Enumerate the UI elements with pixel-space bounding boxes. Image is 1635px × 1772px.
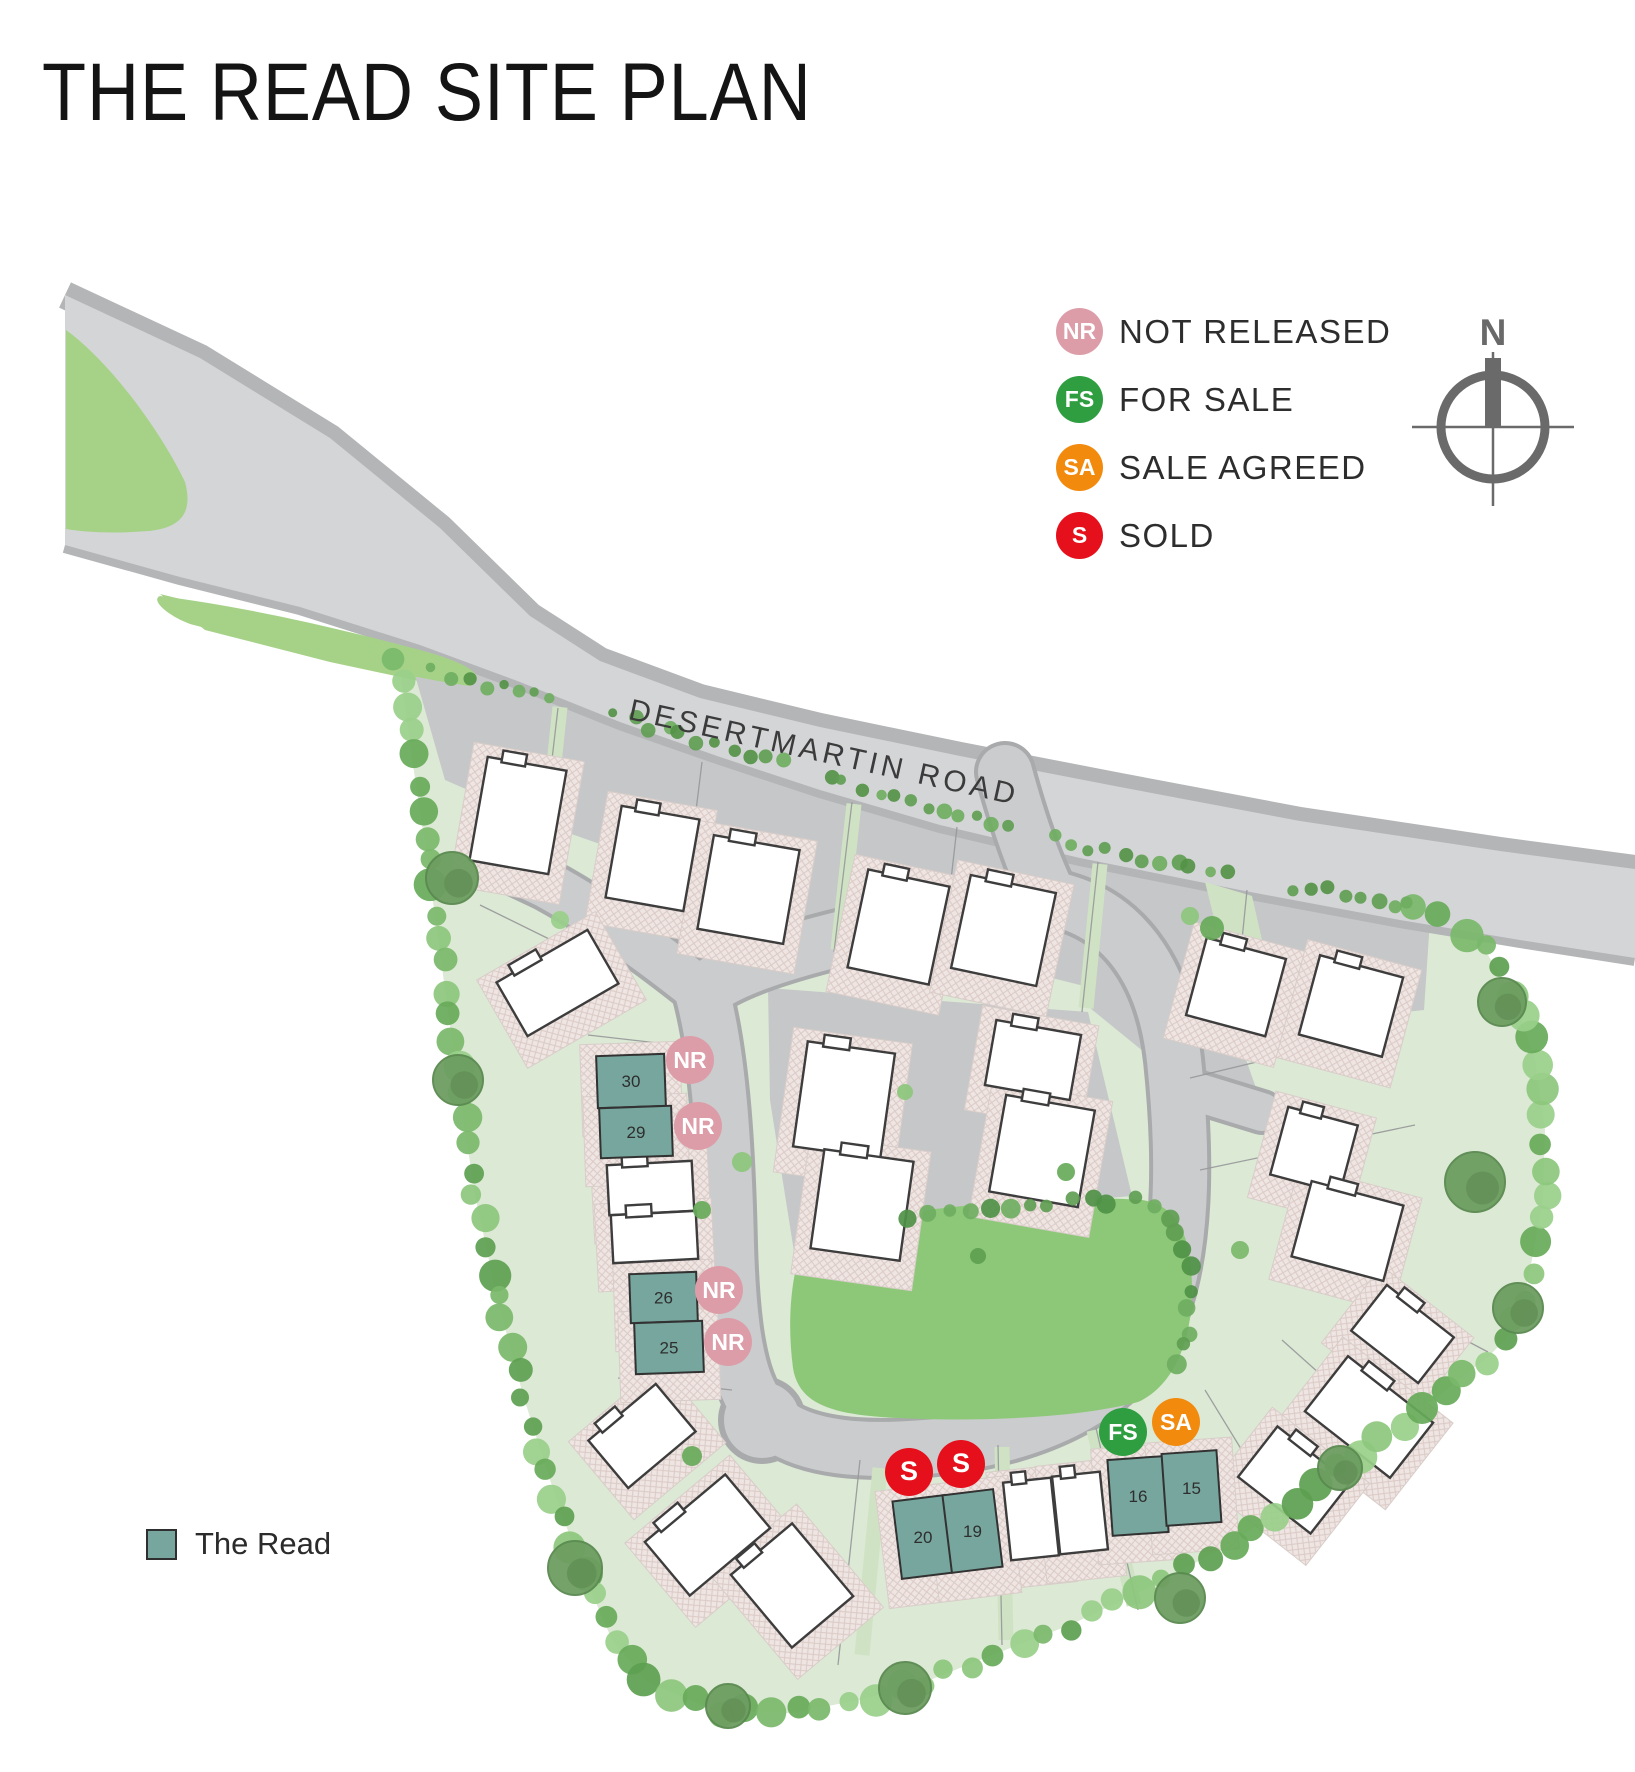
- legend-label: NOT RELEASED: [1119, 313, 1391, 351]
- plot-number: 19: [963, 1522, 982, 1541]
- read-swatch-icon: [146, 1529, 177, 1560]
- badge-code: NR: [702, 1277, 736, 1303]
- badge-code: S: [900, 1456, 918, 1486]
- page-title: THE READ SITE PLAN: [42, 50, 812, 136]
- house: [793, 1032, 896, 1158]
- legend-item-sale-agreed: SA SALE AGREED: [1056, 444, 1391, 491]
- badge-fs-plot-16[interactable]: FS: [1099, 1408, 1147, 1456]
- badge-code: FS: [1108, 1419, 1137, 1445]
- plot-16[interactable]: 16: [1107, 1456, 1168, 1536]
- badge-s-plot-20[interactable]: S: [885, 1448, 933, 1496]
- plot-number: 15: [1182, 1479, 1201, 1498]
- plot-number: 16: [1129, 1487, 1148, 1506]
- legend-label: SOLD: [1119, 517, 1215, 555]
- nr-badge-icon: NR: [1056, 308, 1103, 355]
- plot-25[interactable]: 25: [634, 1321, 704, 1374]
- house-type-key-label: The Read: [195, 1526, 331, 1562]
- badge-nr-plot-26[interactable]: NR: [695, 1266, 743, 1314]
- house: [1051, 1463, 1108, 1555]
- plot-number: 26: [654, 1289, 673, 1308]
- legend-item-sold: S SOLD: [1056, 512, 1391, 559]
- badge-code: NR: [673, 1047, 707, 1073]
- badge-sa-plot-15[interactable]: SA: [1152, 1398, 1200, 1446]
- legend-label: SALE AGREED: [1119, 449, 1367, 487]
- legend-label: FOR SALE: [1119, 381, 1294, 419]
- plot-number: 20: [914, 1528, 933, 1547]
- site-plan-page: 3029262520191615 NRNRNRNRSSFSSA DESERTMA…: [0, 0, 1635, 1772]
- legend-item-for-sale: FS FOR SALE: [1056, 376, 1391, 423]
- plot-number: 29: [627, 1123, 646, 1142]
- compass-needle-icon: [1485, 358, 1501, 427]
- compass-rose: N: [1412, 312, 1574, 506]
- status-legend: NR NOT RELEASED FS FOR SALE SA SALE AGRE…: [1056, 308, 1391, 559]
- plot-30[interactable]: 30: [596, 1054, 666, 1108]
- plot-15[interactable]: 15: [1162, 1450, 1222, 1526]
- house: [1002, 1469, 1059, 1561]
- plot-29[interactable]: 29: [599, 1106, 673, 1158]
- badge-code: S: [952, 1448, 970, 1478]
- plot-19[interactable]: 19: [942, 1489, 1002, 1573]
- legend-item-not-released: NR NOT RELEASED: [1056, 308, 1391, 355]
- plot-26[interactable]: 26: [629, 1272, 698, 1323]
- sold-badge-icon: S: [1056, 512, 1103, 559]
- plot-number: 30: [622, 1072, 641, 1091]
- badge-nr-plot-25[interactable]: NR: [704, 1318, 752, 1366]
- fs-badge-icon: FS: [1056, 376, 1103, 423]
- badge-nr-plot-29[interactable]: NR: [674, 1102, 722, 1150]
- site-plan-map: 3029262520191615 NRNRNRNRSSFSSA DESERTMA…: [0, 0, 1635, 1772]
- house-type-key: The Read: [146, 1526, 331, 1562]
- sa-badge-icon: SA: [1056, 444, 1103, 491]
- plot-number: 25: [660, 1339, 679, 1358]
- badge-code: NR: [681, 1113, 715, 1139]
- badge-code: NR: [711, 1329, 745, 1355]
- badge-nr-plot-30[interactable]: NR: [666, 1036, 714, 1084]
- badge-code: SA: [1160, 1409, 1192, 1435]
- compass-north-label: N: [1480, 312, 1507, 353]
- badge-s-plot-19[interactable]: S: [937, 1440, 985, 1488]
